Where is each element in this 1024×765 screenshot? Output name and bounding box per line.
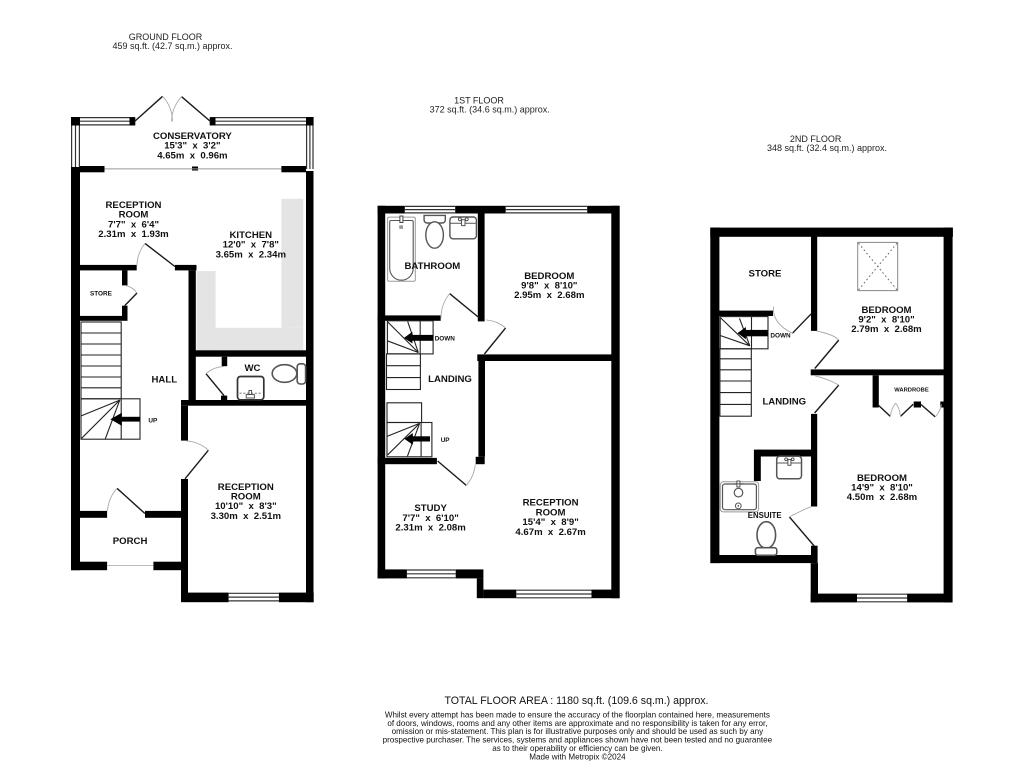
svg-text:BATHROOM: BATHROOM (405, 261, 461, 272)
svg-text:372 sq.ft. (34.6 sq.m.) approx: 372 sq.ft. (34.6 sq.m.) approx. (430, 104, 550, 114)
svg-text:WARDROBE: WARDROBE (894, 388, 929, 394)
svg-text:UP: UP (148, 417, 158, 424)
svg-text:3.30m x 2.51m: 3.30m x 2.51m (211, 511, 281, 522)
svg-text:DOWN: DOWN (435, 336, 456, 343)
svg-text:2.79m x 2.68m: 2.79m x 2.68m (851, 324, 921, 335)
svg-text:ENSUITE: ENSUITE (748, 511, 782, 520)
svg-text:Made with Metropix ©2024: Made with Metropix ©2024 (529, 752, 626, 761)
svg-text:TOTAL FLOOR AREA : 1180 sq.ft.: TOTAL FLOOR AREA : 1180 sq.ft. (109.6 sq… (445, 695, 709, 707)
svg-text:STORE: STORE (90, 291, 113, 298)
svg-text:348 sq.ft. (32.4 sq.m.) approx: 348 sq.ft. (32.4 sq.m.) approx. (767, 143, 887, 153)
svg-text:DOWN: DOWN (770, 332, 791, 339)
svg-text:4.67m x 2.67m: 4.67m x 2.67m (515, 527, 585, 538)
svg-text:4.65m x 0.96m: 4.65m x 0.96m (157, 150, 227, 161)
svg-text:2.31m x 1.93m: 2.31m x 1.93m (98, 229, 168, 240)
svg-text:3.65m x 2.34m: 3.65m x 2.34m (216, 249, 286, 260)
svg-text:2.31m x 2.08m: 2.31m x 2.08m (395, 523, 465, 534)
svg-text:2.95m x 2.68m: 2.95m x 2.68m (514, 290, 584, 301)
svg-text:UP: UP (441, 437, 451, 444)
svg-text:HALL: HALL (152, 374, 178, 385)
svg-text:LANDING: LANDING (428, 374, 472, 385)
svg-text:PORCH: PORCH (113, 536, 148, 547)
svg-text:WC: WC (245, 363, 261, 374)
svg-text:STORE: STORE (749, 269, 782, 280)
svg-text:4.50m x 2.68m: 4.50m x 2.68m (847, 492, 917, 503)
svg-text:459 sq.ft. (42.7 sq.m.) approx: 459 sq.ft. (42.7 sq.m.) approx. (112, 41, 232, 51)
svg-text:LANDING: LANDING (762, 396, 806, 407)
